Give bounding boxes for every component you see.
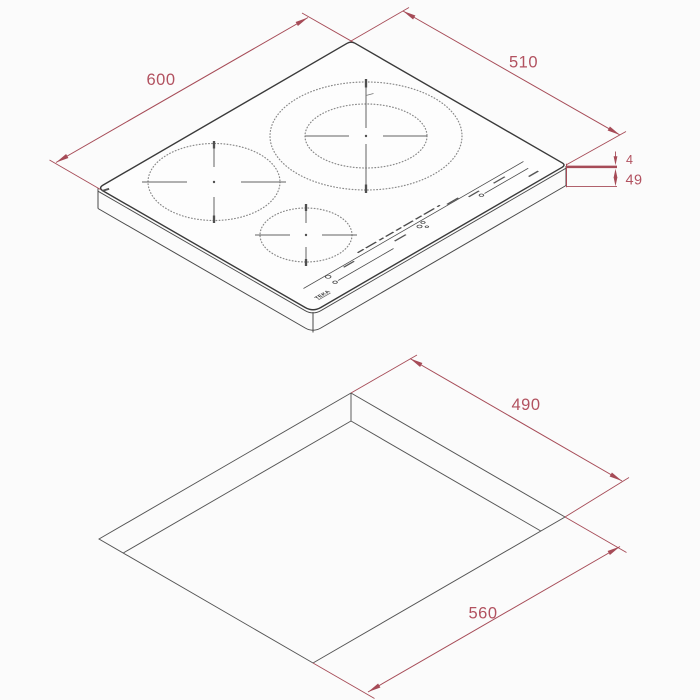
- svg-text:490: 490: [511, 396, 540, 414]
- svg-text:560: 560: [468, 605, 497, 623]
- svg-text:600: 600: [146, 71, 175, 89]
- svg-text:49: 49: [626, 173, 643, 189]
- svg-text:4: 4: [626, 153, 633, 167]
- svg-text:510: 510: [509, 54, 538, 72]
